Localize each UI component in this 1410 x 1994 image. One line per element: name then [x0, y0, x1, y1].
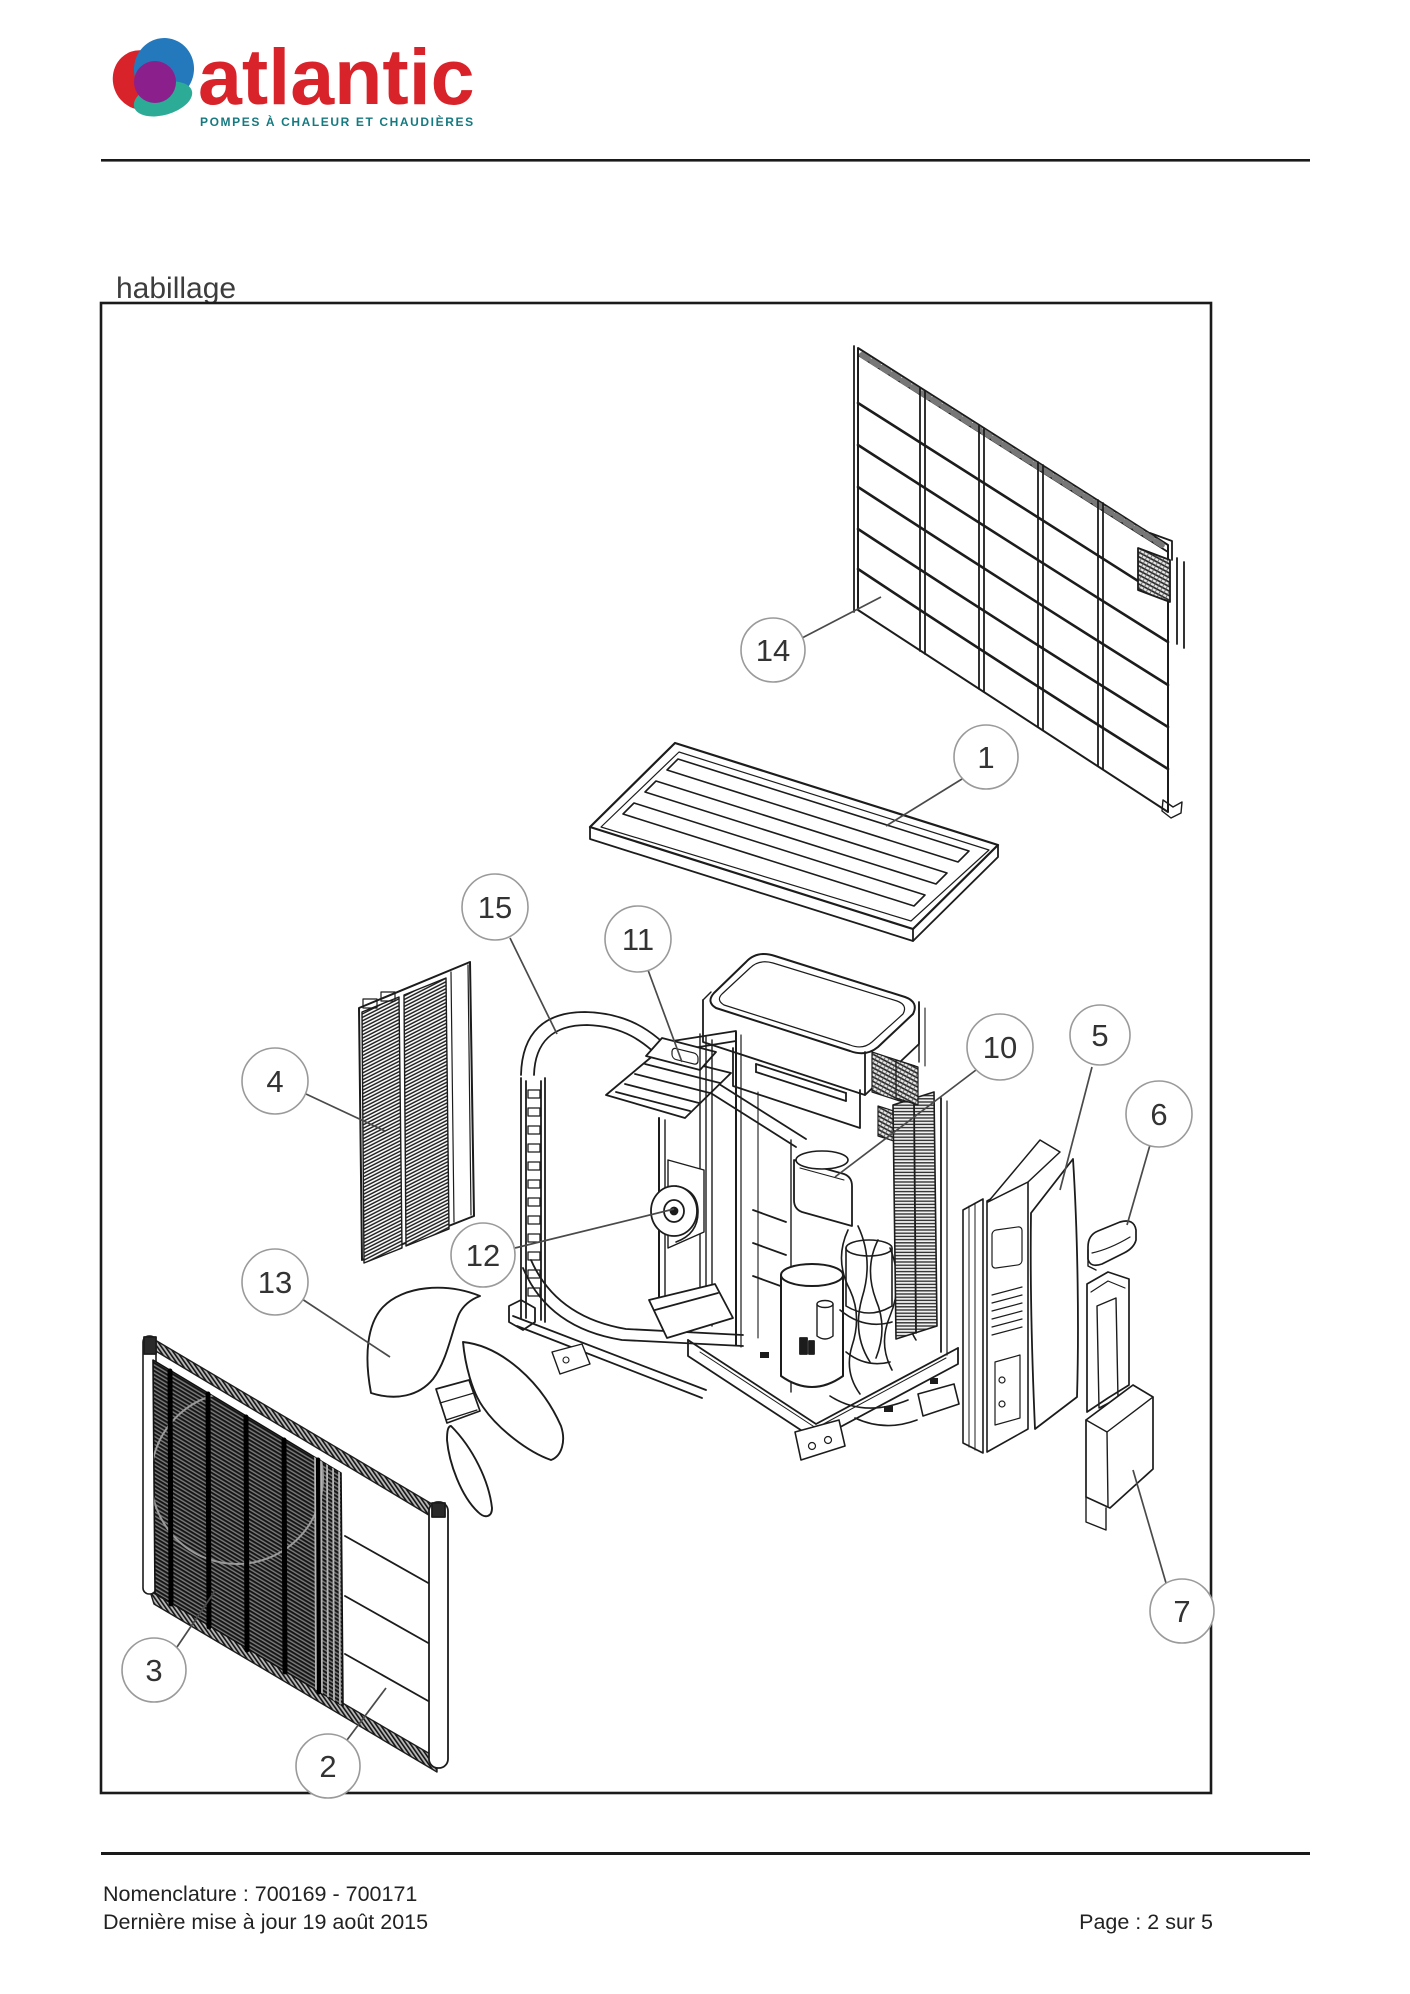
svg-text:14: 14: [756, 633, 790, 668]
svg-text:13: 13: [258, 1265, 292, 1300]
svg-text:3: 3: [145, 1653, 162, 1688]
svg-text:Nomenclature : 700169 - 700171: Nomenclature : 700169 - 700171: [103, 1882, 417, 1906]
svg-text:habillage: habillage: [116, 272, 236, 305]
svg-text:Page : 2 sur 5: Page : 2 sur 5: [1079, 1910, 1213, 1934]
svg-text:12: 12: [466, 1238, 500, 1273]
svg-text:Dernière mise à jour 19 août 2: Dernière mise à jour 19 août 2015: [103, 1910, 428, 1934]
svg-text:6: 6: [1150, 1097, 1167, 1132]
svg-text:7: 7: [1173, 1594, 1190, 1629]
svg-text:atlantic: atlantic: [198, 32, 475, 121]
svg-text:1: 1: [977, 740, 994, 775]
svg-text:4: 4: [266, 1064, 283, 1099]
svg-text:2: 2: [319, 1749, 336, 1784]
svg-text:POMPES À CHALEUR ET CHAUDIÈRES: POMPES À CHALEUR ET CHAUDIÈRES: [200, 114, 475, 129]
svg-text:5: 5: [1091, 1018, 1108, 1053]
svg-text:11: 11: [622, 922, 654, 957]
svg-text:10: 10: [983, 1030, 1017, 1065]
svg-text:15: 15: [478, 890, 512, 925]
